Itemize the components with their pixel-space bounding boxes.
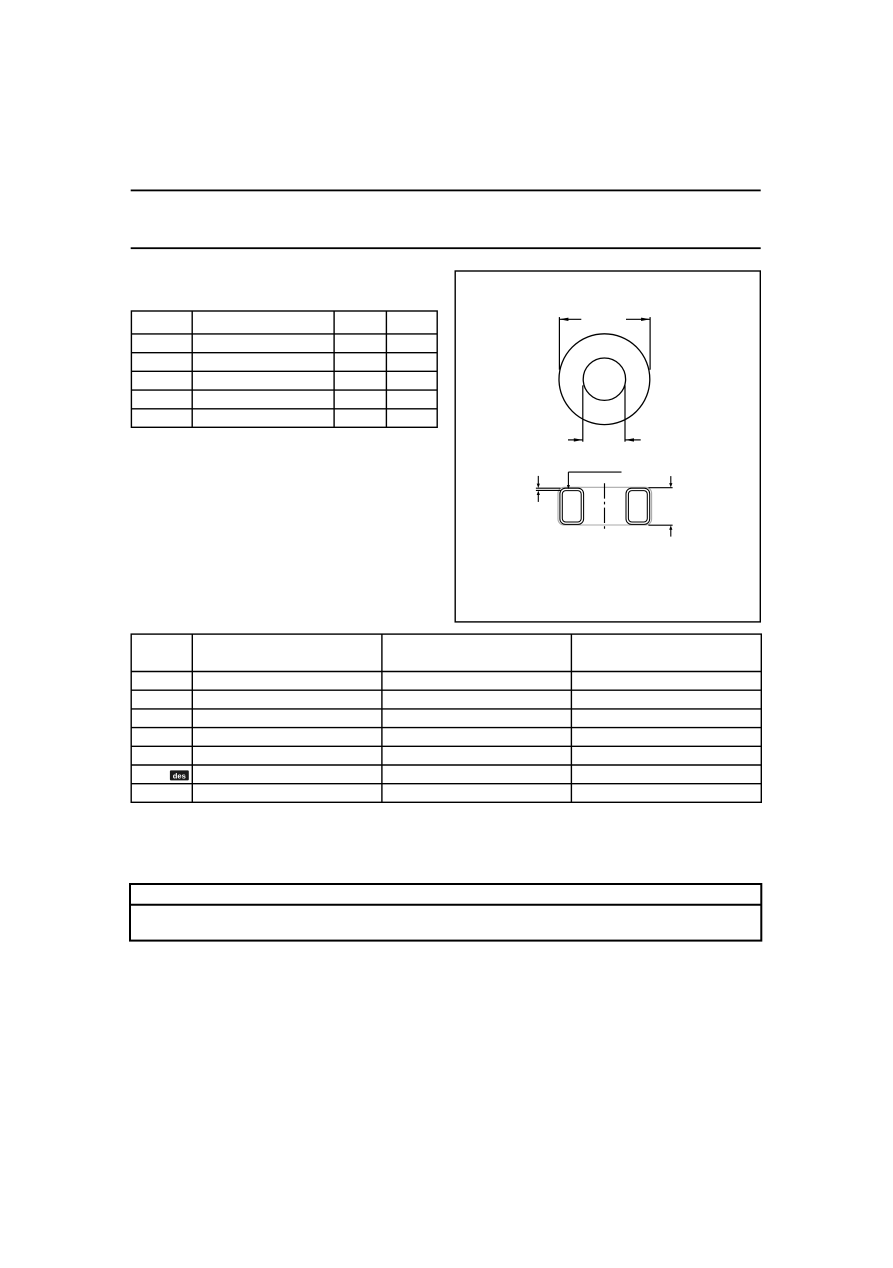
svg-text:des: des — [173, 771, 186, 780]
